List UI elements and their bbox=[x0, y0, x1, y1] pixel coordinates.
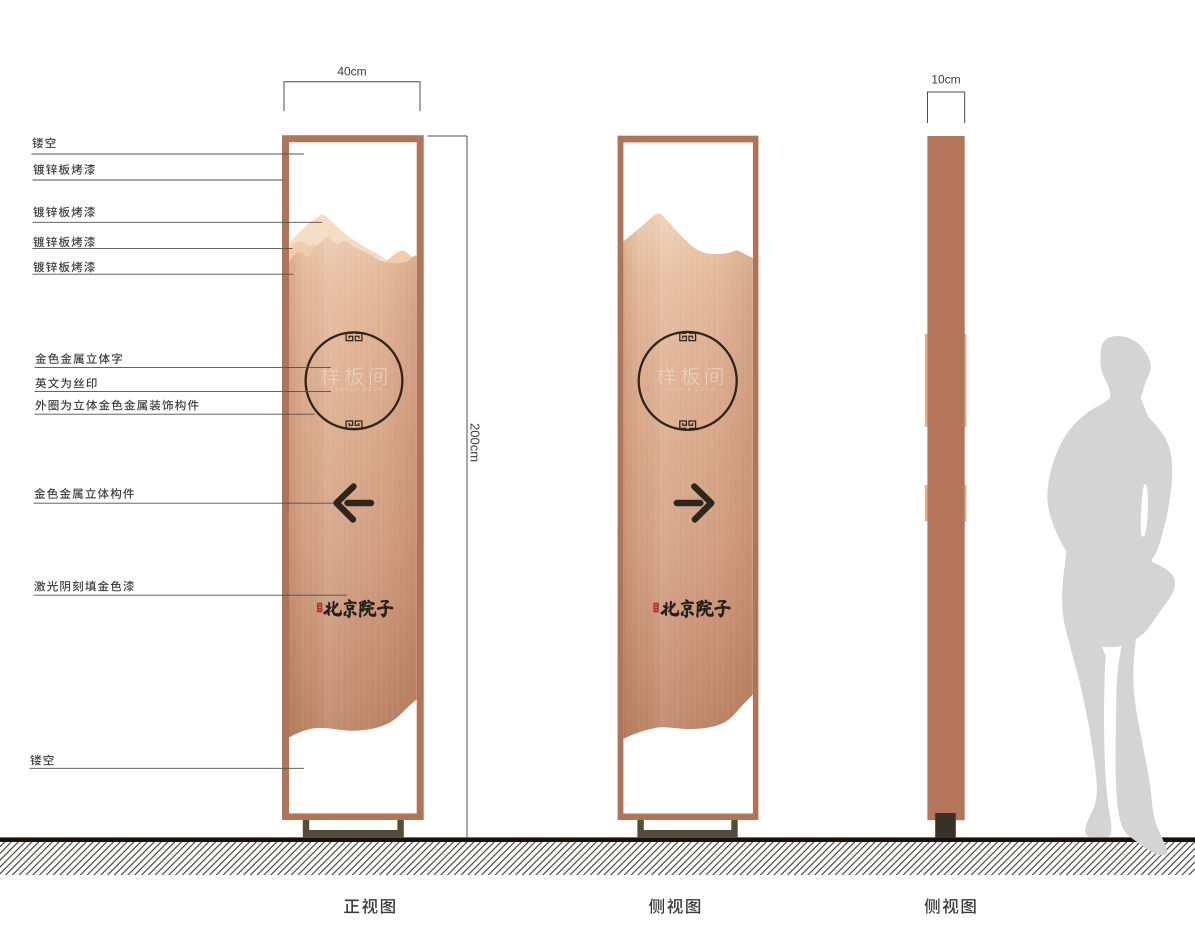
svg-text:200cm: 200cm bbox=[468, 423, 483, 462]
svg-text:SAMPLE ROOM: SAMPLE ROOM bbox=[330, 387, 384, 393]
svg-text:10cm: 10cm bbox=[931, 73, 960, 87]
svg-text:SAMPLE ROOM: SAMPLE ROOM bbox=[663, 387, 717, 393]
svg-text:40cm: 40cm bbox=[337, 65, 366, 79]
